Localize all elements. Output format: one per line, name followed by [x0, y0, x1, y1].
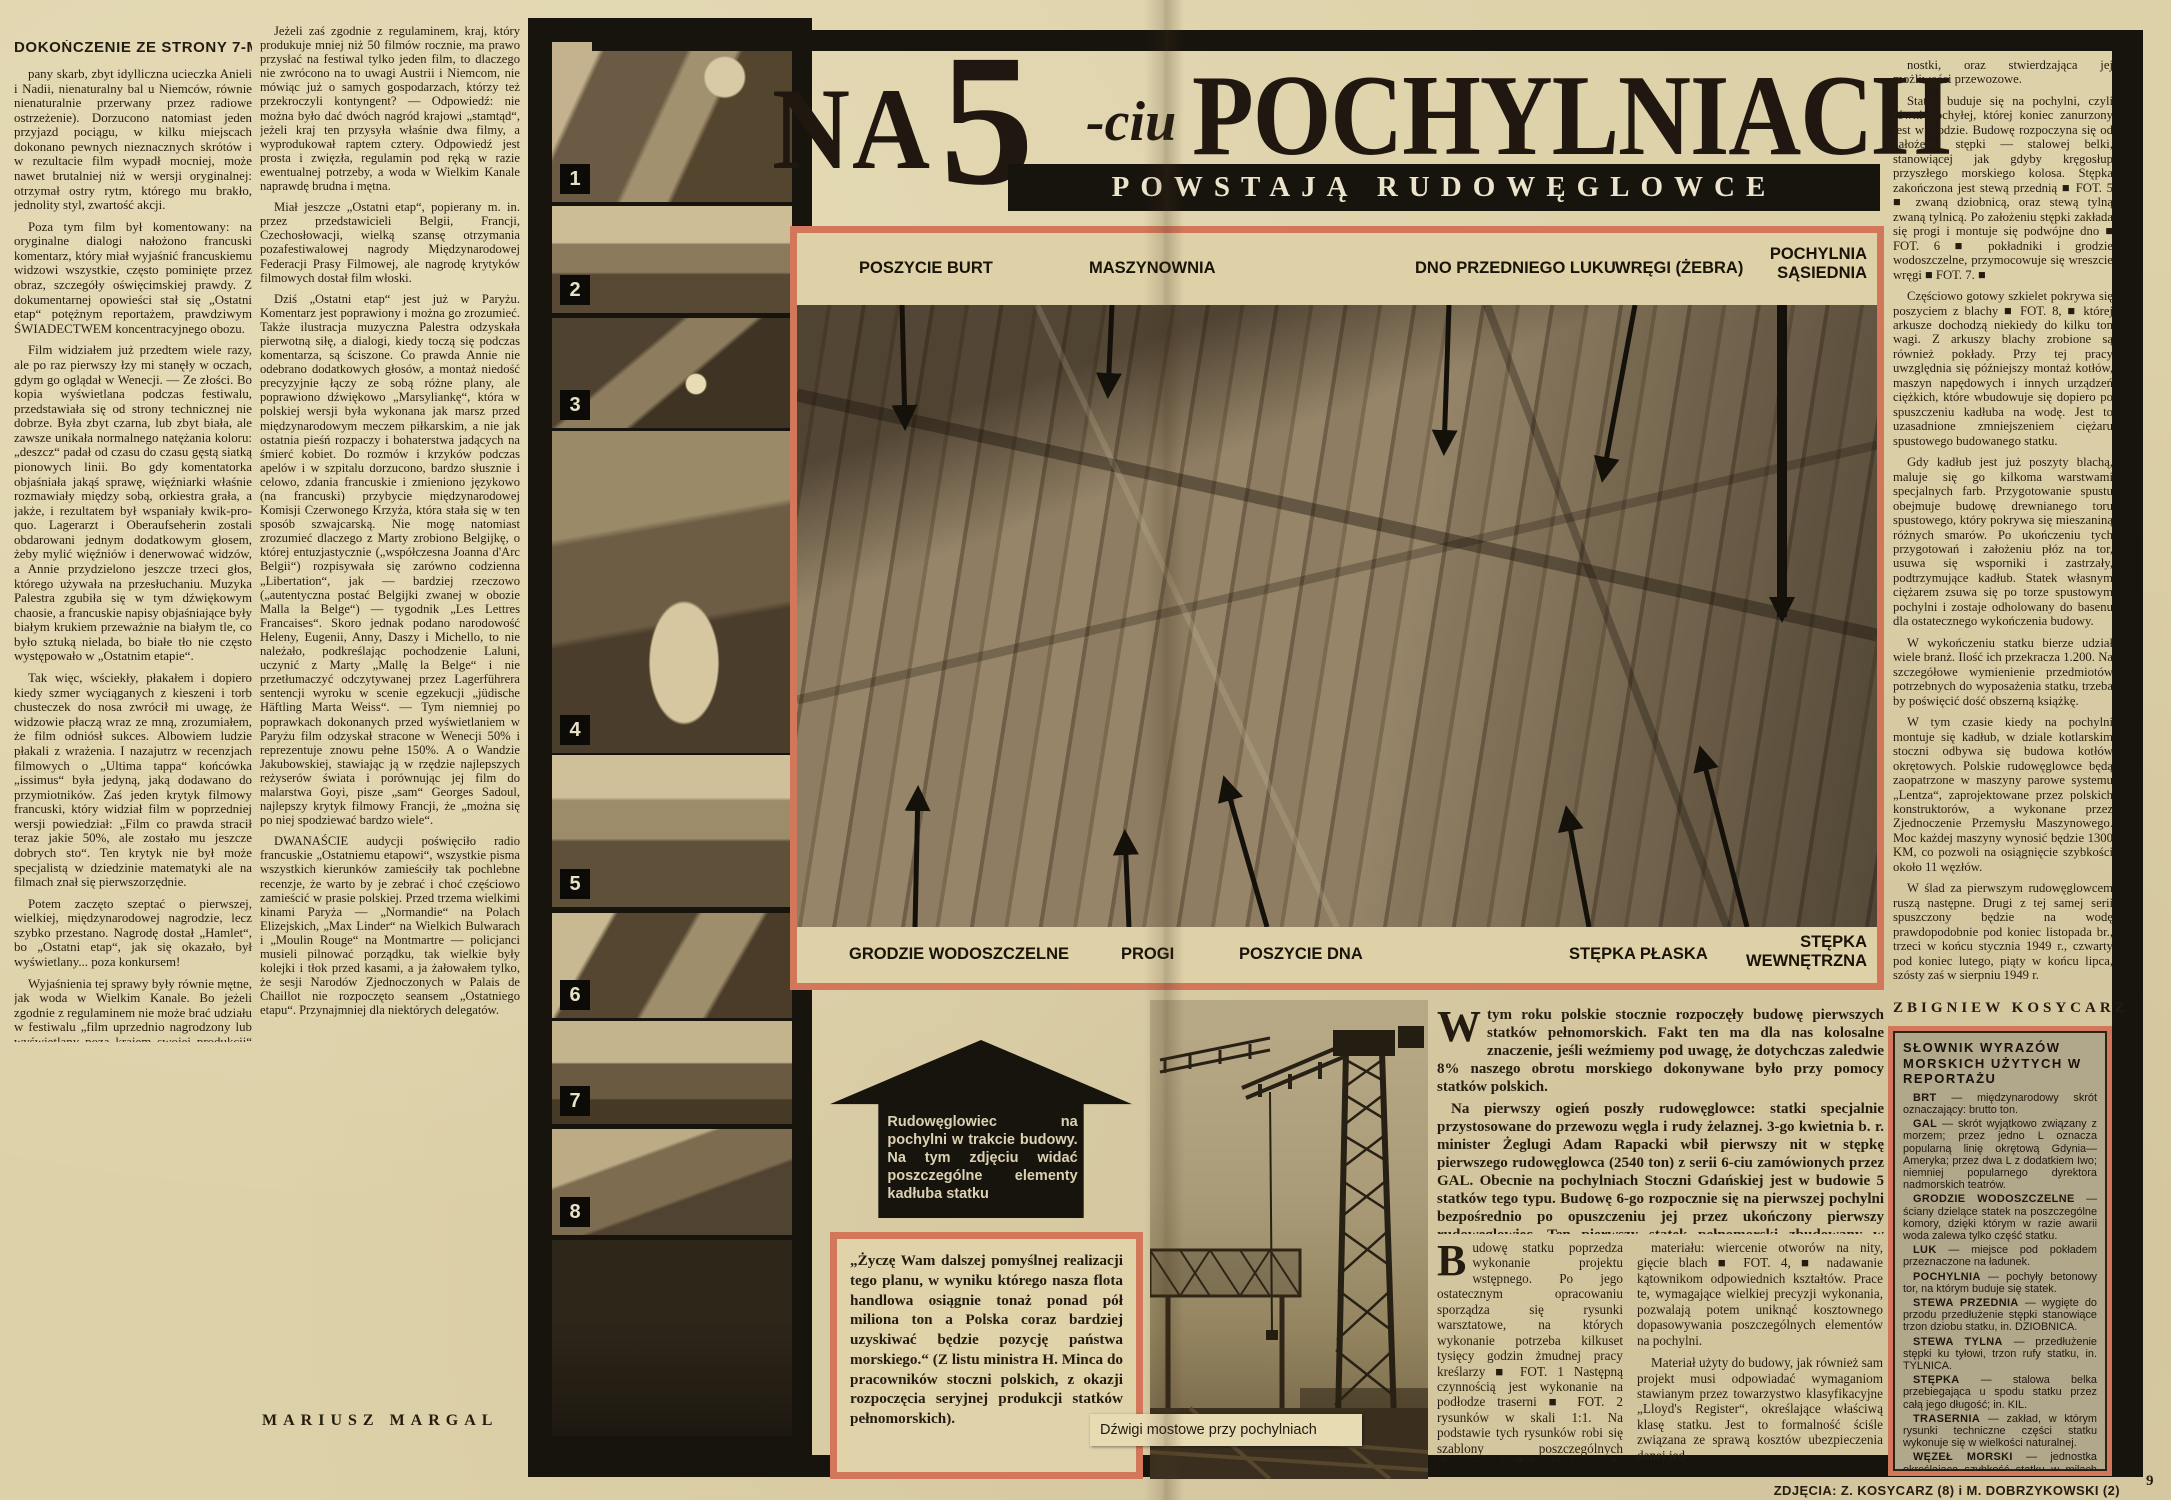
glossary-entry: BRT — międzynarodowy skrót oznaczający: …	[1903, 1092, 2097, 1116]
strip-photo-harbor: 8	[552, 1129, 792, 1235]
photo-number-badge: 3	[560, 390, 590, 420]
article-paragraph: W tym czasie kiedy na pochylni montuje s…	[1893, 715, 2113, 874]
label-grodzie-wodoszczelne: GRODZIE WODOSZCZELNE	[849, 945, 1069, 964]
article-paragraph: Materiał użyty do budowy, jak również sa…	[1637, 1355, 1883, 1462]
glossary-entry: STEWA PRZEDNIA — wygięte do przodu przed…	[1903, 1297, 2097, 1334]
strip-photo-welder: 3	[552, 318, 792, 428]
strip-photo-hull-skeleton: 7	[552, 1021, 792, 1124]
article-paragraph: Film widziałem już przedtem wiele razy, …	[14, 343, 252, 664]
article-paragraph: DWANAŚCIE audycji poświęciło radio franc…	[260, 834, 520, 1017]
main-shipyard-photo: POSZYCIE BURT MASZYNOWNIA DNO PRZEDNIEGO…	[790, 226, 1884, 990]
photo-credits: ZDJĘCIA: Z. KOSYCARZ (8) i M. DOBRZYKOWS…	[1740, 1483, 2120, 1498]
article-paragraph: nostki, oraz stwierdzająca jej możliwośc…	[1893, 58, 2113, 87]
intro-paragraph-2: Na pierwszy ogień poszły rudowęglowce: s…	[1437, 1100, 1884, 1234]
strip-photo-draftsman: 1	[552, 42, 792, 202]
photo-number-badge: 8	[560, 1197, 590, 1227]
article-paragraph: Jeżeli zaś zgodnie z regulaminem, kraj, …	[260, 24, 520, 193]
photo-label-band-bottom: GRODZIE WODOSZCZELNE PROGI POSZYCIE DNA …	[797, 927, 1877, 983]
label-maszynownia: MASZYNOWNIA	[1089, 259, 1216, 278]
article-paragraph: Poza tym film był komentowany: na orygin…	[14, 220, 252, 337]
article-column-b: materiału: wiercenie otworów na nity, gi…	[1637, 1240, 1883, 1462]
right-frame-bar	[2112, 30, 2143, 1477]
photo-number-badge: 6	[560, 980, 590, 1010]
glossary-entry: WĘZEŁ MORSKI — jednostka określająca szy…	[1903, 1451, 2097, 1476]
glossary-entry: STĘPKA — stalowa belka przebiegająca u s…	[1903, 1374, 2097, 1411]
article-paragraph: Dziś „Ostatni etap“ jest już w Paryżu. K…	[260, 292, 520, 828]
right-column: nostki, oraz stwierdzająca jej możliwośc…	[1893, 58, 2113, 998]
headline-word-na: NA	[772, 72, 932, 189]
crane-illustration	[1150, 1000, 1428, 1479]
label-dno-przedniego-luku: DNO PRZEDNIEGO LUKU	[1415, 259, 1616, 278]
article-paragraph: Gdy kadłub jest już poszyty blachą, malu…	[1893, 455, 2113, 629]
article-paragraph: Tak więc, wściekły, płakałem i dopiero k…	[14, 671, 252, 890]
photo-number-badge: 5	[560, 869, 590, 899]
glossary-entry: TRASERNIA — zakład, w którym rysunki tec…	[1903, 1413, 2097, 1450]
glossary-title: SŁOWNIK WYRAZÓW MORSKICH UŻYTYCH W REPOR…	[1903, 1040, 2097, 1087]
glossary-entry: GRODZIE WODOSZCZELNE — ściany dzielące s…	[1903, 1193, 2097, 1242]
photo-number-badge: 7	[560, 1086, 590, 1116]
article-paragraph: Budowę statku poprzedza wykonanie projek…	[1437, 1240, 1623, 1462]
glossary-entry: GAL — skrót wyjątkowo związany z morzem;…	[1903, 1118, 2097, 1191]
crane-photo	[1150, 1000, 1428, 1479]
article-paragraph: W wykończeniu statku bierze udział wiele…	[1893, 636, 2113, 708]
page-number: 9	[2146, 1473, 2154, 1490]
article-paragraph: Wyjaśnienia tej sprawy były równie mętne…	[14, 977, 252, 1042]
label-poszycie-dna: POSZYCIE DNA	[1239, 945, 1363, 964]
left-column-2: Jeżeli zaś zgodnie z regulaminem, kraj, …	[260, 24, 520, 1408]
article-paragraph: materiału: wiercenie otworów na nity, gi…	[1637, 1240, 1883, 1348]
label-stepka-wewnetrzna: STĘPKA WEWNĘTRZNA	[1727, 933, 1867, 971]
glossary-entries: BRT — międzynarodowy skrót oznaczający: …	[1903, 1092, 2097, 1476]
article-paragraph: W ślad za pierwszym rudowęglowcem ruszą …	[1893, 881, 2113, 982]
strip-photo-dark-filler	[552, 1240, 792, 1436]
label-stepka-plaska: STĘPKA PŁASKA	[1569, 945, 1708, 964]
intro-paragraph-1: W tym roku polskie stocznie rozpoczęły b…	[1437, 1006, 1884, 1096]
label-poszycie-burt: POSZYCIE BURT	[859, 259, 993, 278]
strip-photo-frames: 6	[552, 913, 792, 1018]
up-arrow-note: Rudowęglowiec na pochylni w trakcie budo…	[830, 1040, 1132, 1218]
author-byline-margal: MARIUSZ MARGAL	[262, 1412, 498, 1430]
quote-text: „Życzę Wam dalszej pomyślnej realizacji …	[850, 1251, 1123, 1429]
label-progi: PROGI	[1121, 945, 1174, 964]
photo-number-badge: 2	[560, 275, 590, 305]
article-paragraph: pany skarb, zbyt idylliczna ucieczka Ani…	[14, 67, 252, 213]
glossary-entry: STEWA TYLNA — przedłużenie stępki ku tył…	[1903, 1336, 2097, 1373]
glossary-entry: LUK — miejsce pod pokładem przeznaczone …	[1903, 1244, 2097, 1268]
photo-strip: 1 2 3 4 5 6 7 8	[528, 18, 812, 1477]
article-paragraph: Potem zaczęto szeptać o pierwszej, wielk…	[14, 897, 252, 970]
article-intro: W tym roku polskie stocznie rozpoczęły b…	[1437, 1006, 1884, 1234]
photo-number-badge: 4	[560, 715, 590, 745]
continuation-header: DOKOŃCZENIE ZE STRONY 7-MEJ	[14, 40, 252, 57]
shipyard-slipway-image	[797, 305, 1877, 927]
photo-annotation-arrows	[797, 305, 1877, 927]
left-column-1: DOKOŃCZENIE ZE STRONY 7-MEJ pany skarb, …	[14, 40, 252, 1042]
article-column-a: Budowę statku poprzedza wykonanie projek…	[1437, 1240, 1623, 1462]
top-frame-bar	[592, 30, 2113, 51]
photo-number-badge: 1	[560, 164, 590, 194]
strip-photo-loft-hall: 2	[552, 206, 792, 313]
article-paragraph: Miał jeszcze „Ostatni etap“, popierany m…	[260, 200, 520, 285]
strip-photo-plate-worker: 4	[552, 431, 792, 753]
headline-subtitle-bar: POWSTAJĄ RUDOWĘGLOWCE	[1008, 164, 1880, 211]
glossary-box: SŁOWNIK WYRAZÓW MORSKICH UŻYTYCH W REPOR…	[1888, 1026, 2112, 1476]
headline-word-pochylniach: POCHYLNIACH	[1192, 58, 1950, 173]
photo-label-band-top: POSZYCIE BURT MASZYNOWNIA DNO PRZEDNIEGO…	[797, 233, 1877, 305]
headline-suffix-ciu: -ciu	[1086, 94, 1176, 150]
label-wregi-zebra: WRĘGI (ŻEBRA)	[1615, 259, 1743, 278]
arrow-note-text: Rudowęglowiec na pochylni w trakcie budo…	[887, 1113, 1077, 1204]
strip-photo-launch-crowd: 5	[552, 755, 792, 907]
author-byline-kosycarz: ZBIGNIEW KOSYCARZ	[1893, 1000, 2129, 1017]
label-pochylnia-sasiednia: POCHYLNIA SĄSIEDNIA	[1749, 245, 1867, 283]
col1-text: pany skarb, zbyt idylliczna ucieczka Ani…	[14, 67, 252, 1042]
crane-photo-caption: Dźwigi mostowe przy pochylniach	[1090, 1414, 1362, 1446]
article-paragraph: Statek buduje się na pochylni, czyli rów…	[1893, 94, 2113, 282]
glossary-entry: POCHYLNIA — pochyły betonowy tor, na któ…	[1903, 1271, 2097, 1295]
magazine-spread: DOKOŃCZENIE ZE STRONY 7-MEJ pany skarb, …	[0, 0, 2171, 1500]
article-paragraph: Częściowo gotowy szkielet pokrywa się po…	[1893, 289, 2113, 448]
